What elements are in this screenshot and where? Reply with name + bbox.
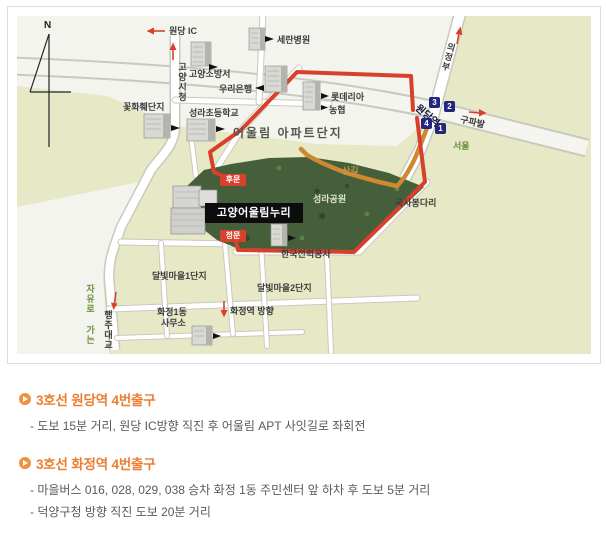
label-fire-station: 고양소방서: [189, 69, 230, 80]
exit-2-badge: 2: [444, 101, 455, 112]
label-seongna-park: 성라공원: [313, 194, 346, 205]
label-kepco: 한국전력공사: [281, 249, 331, 260]
direction-line: - 마을버스 016, 028, 029, 038 승차 화정 1동 주민센터 …: [30, 479, 430, 501]
map-panel: N 원당 IC 고양시청 고양소방서 세란병원 우리은행 롯데리아 농협 꽃화훼…: [7, 6, 601, 364]
label-nonghyup: 농협: [329, 105, 346, 116]
bullet-arrow-icon: [19, 457, 31, 469]
label-dalbit-village1: 달빛마을1단지: [152, 271, 207, 282]
label-guksabong-bridge: 국사봉다리: [395, 198, 436, 209]
label-lotteria: 롯데리아: [331, 92, 364, 103]
direction-line: - 덕양구청 방향 직진 도보 20분 거리: [30, 501, 430, 523]
play-triangle-icon: [23, 396, 28, 402]
label-haengju-bridge: 행주대교: [103, 310, 113, 350]
arena-name-box: 고양어울림누리: [205, 203, 303, 223]
label-seoul: 서울: [453, 141, 470, 152]
exit-4-badge: 4: [421, 118, 432, 129]
direction-section-wondang: 3호선 원당역 4번출구 - 도보 15분 거리, 원당 IC방향 직진 후 어…: [19, 389, 365, 437]
main-gate-box: 정문: [220, 230, 246, 242]
direction-section-hwajeong: 3호선 화정역 4번출구 - 마을버스 016, 028, 029, 038 승…: [19, 453, 430, 523]
label-woori-bank: 우리은행: [219, 84, 252, 95]
bullet-arrow-icon: [19, 393, 31, 405]
exit-1-badge: 1: [435, 123, 446, 134]
compass-n-label: N: [44, 20, 51, 31]
location-map: N 원당 IC 고양시청 고양소방서 세란병원 우리은행 롯데리아 농협 꽃화훼…: [17, 16, 591, 354]
direction-title-hwajeong: 3호선 화정역 4번출구: [36, 453, 155, 473]
direction-title-wondang: 3호선 원당역 4번출구: [36, 389, 155, 409]
direction-line: - 도보 15분 거리, 원당 IC방향 직진 후 어울림 APT 사잇길로 좌…: [30, 415, 365, 437]
label-jayuro-road: 자유로 가는 길: [85, 284, 95, 354]
label-wondang-ic: 원당 IC: [169, 26, 197, 37]
label-flower-complex: 꽃화훼단지: [123, 102, 164, 113]
label-oullim-apt: 어울림 아파트단지: [233, 128, 343, 139]
label-trail: 산길: [342, 166, 359, 177]
label-dalbit-village2: 달빛마을2단지: [257, 283, 312, 294]
map-graphics: [17, 16, 591, 354]
play-triangle-icon: [23, 460, 28, 466]
back-gate-box: 후문: [220, 174, 246, 186]
label-hwajeong-office-1: 화정1동: [157, 307, 187, 318]
label-goyang-city-hall: 고양시청: [177, 62, 187, 102]
label-hwajeong-office-2: 사무소: [161, 318, 186, 329]
label-seongna-elementary: 성라초등학교: [189, 108, 239, 119]
label-hwajeong-direction: 화정역 방향: [230, 306, 274, 317]
exit-3-badge: 3: [429, 97, 440, 108]
label-seran-hospital: 세란병원: [277, 35, 310, 46]
